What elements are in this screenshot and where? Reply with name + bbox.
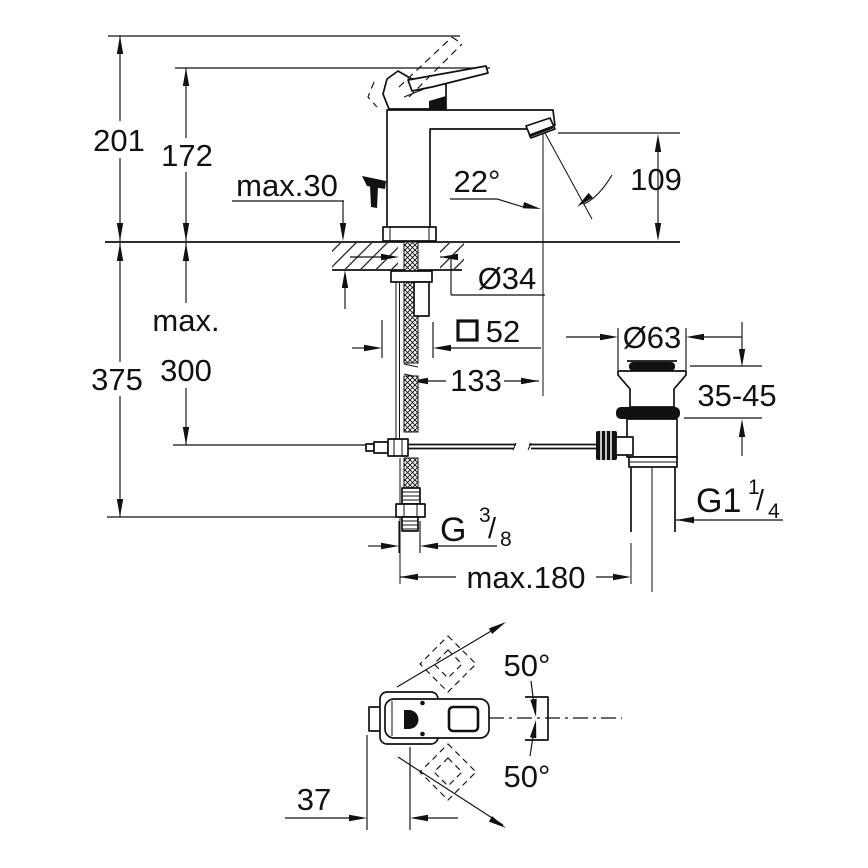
dim-base-square: 52 <box>486 314 520 349</box>
dim-rod-reach: max.180 <box>467 560 586 595</box>
dim-body-height: 172 <box>161 138 213 173</box>
supply-thread-slash: / <box>488 513 497 545</box>
dim-flange-diameter: Ø63 <box>623 320 682 355</box>
dim-rod-depth: 300 <box>160 353 212 388</box>
hose-nut <box>396 504 425 517</box>
dim-spout-height: 109 <box>630 162 682 197</box>
dim-deck-max: max.30 <box>236 168 338 203</box>
dim-spray-angle: 22° <box>454 164 501 199</box>
dim-hole-diameter: Ø34 <box>478 261 537 296</box>
faucet-dimension-drawing: 201 172 max.30 22° 109 Ø34 52 133 max. 3… <box>0 0 868 868</box>
mounting-bracket <box>414 282 429 316</box>
waste-thread-main: G1 <box>696 482 741 520</box>
waste-thread-slash: / <box>756 485 765 517</box>
dim-supply-depth: 375 <box>91 362 143 397</box>
dim-max-word: max. <box>152 303 219 338</box>
supply-thread-sub: 8 <box>500 528 512 551</box>
screw-dot <box>420 732 425 737</box>
drain-plug-cap <box>629 362 675 371</box>
waste-thread-sub: 4 <box>768 500 780 523</box>
dim-overall-height: 201 <box>93 123 145 158</box>
dim-spout-projection: 133 <box>450 363 502 398</box>
base-plate <box>383 227 436 241</box>
screw-dot <box>420 701 425 706</box>
spout-outlet-square <box>449 707 478 731</box>
drain-gasket <box>616 407 680 419</box>
dim-handle-offset: 37 <box>297 782 331 817</box>
drain-knob-stub <box>616 437 633 455</box>
dim-swing-upper: 50° <box>504 648 551 683</box>
supply-thread-main: G <box>440 511 466 549</box>
mounting-nut <box>391 271 432 282</box>
dim-swing-lower: 50° <box>504 759 551 794</box>
dim-deck-range: 35-45 <box>697 378 776 413</box>
technical-drawing-page: 201 172 max.30 22° 109 Ø34 52 133 max. 3… <box>0 0 868 868</box>
drain-body <box>627 419 677 457</box>
supply-hose-mid <box>404 376 418 432</box>
supply-hose-lower <box>404 458 418 488</box>
